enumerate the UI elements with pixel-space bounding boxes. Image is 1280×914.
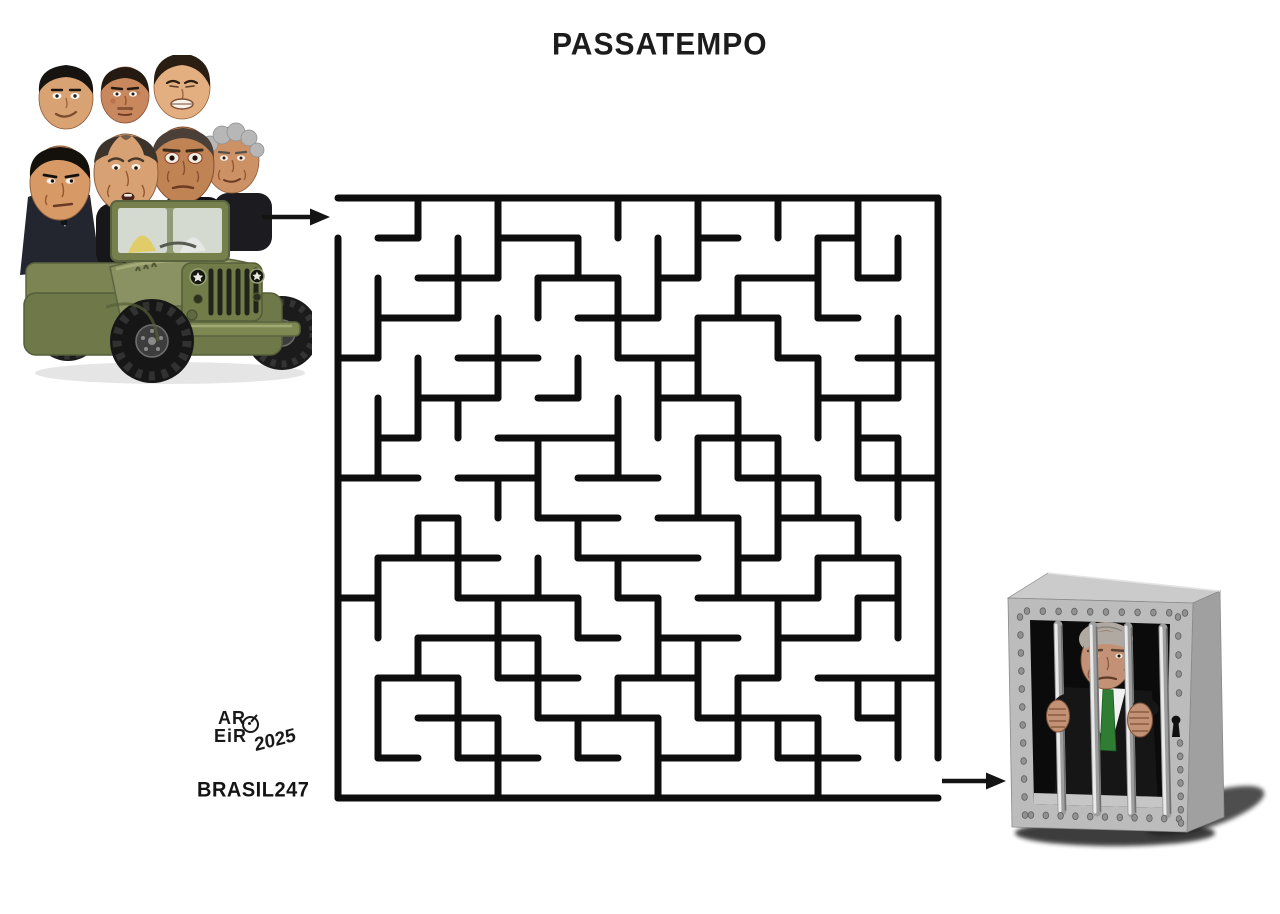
rivet-icon xyxy=(1019,704,1025,711)
jeep-windshield xyxy=(111,201,229,261)
rivet-icon xyxy=(1178,820,1184,827)
caricature-head-3 xyxy=(154,55,210,119)
rivet-icon xyxy=(1022,794,1028,801)
rivet-icon xyxy=(1135,609,1141,616)
rivet-icon xyxy=(1178,806,1184,813)
caricature-head-4 xyxy=(30,146,90,220)
jeep-front-wheel xyxy=(110,299,194,383)
rivet-icon xyxy=(1178,766,1184,773)
rivet-icon xyxy=(1176,652,1182,659)
rivet-icon xyxy=(1176,690,1182,697)
rivet-icon xyxy=(1018,650,1024,657)
rivet-icon xyxy=(1178,780,1184,787)
signature-o-dot xyxy=(248,722,251,725)
rivet-icon xyxy=(1175,614,1181,621)
jeep-grille xyxy=(182,263,264,321)
rivet-icon xyxy=(1018,632,1024,639)
caricature-head-6 xyxy=(152,127,214,203)
rivet-icon xyxy=(1019,686,1025,693)
rivet-icon xyxy=(1028,812,1034,819)
page-title: PASSATEMPO xyxy=(552,27,762,63)
rivet-icon xyxy=(1177,753,1183,760)
rivet-icon xyxy=(1040,608,1046,615)
rivet-icon xyxy=(1024,608,1030,615)
rivet-icon xyxy=(1103,609,1109,616)
cartoon-page: PASSATEMPO xyxy=(0,0,1280,914)
caricature-head-1 xyxy=(39,65,93,129)
maze-puzzle xyxy=(318,178,958,818)
rivet-icon xyxy=(1043,812,1049,819)
rivet-icon xyxy=(1182,610,1188,617)
rivet-icon xyxy=(1056,608,1062,615)
maze-exit-arrow-icon xyxy=(938,768,1008,794)
caricature-head-2 xyxy=(101,67,149,123)
rivet-icon xyxy=(1177,740,1183,747)
rivet-icon xyxy=(1176,671,1182,678)
rivet-icon xyxy=(1178,793,1184,800)
rivet-icon xyxy=(1020,740,1026,747)
rivet-icon xyxy=(1161,815,1167,822)
rivet-icon xyxy=(1147,815,1153,822)
rivet-icon xyxy=(1021,758,1027,765)
jail-cage-scene xyxy=(1000,565,1275,860)
rivet-icon xyxy=(1117,814,1123,821)
rivet-icon xyxy=(1073,813,1079,820)
rivet-icon xyxy=(1019,668,1025,675)
rivet-icon xyxy=(1072,608,1078,615)
brand-text: BRASIL247 xyxy=(197,778,309,802)
rivet-icon xyxy=(1022,812,1028,819)
rivet-icon xyxy=(1102,814,1108,821)
signature-year: 2025 xyxy=(253,725,297,757)
rivet-icon xyxy=(1020,722,1026,729)
rivet-icon xyxy=(1087,608,1093,615)
signature-o-tick xyxy=(250,714,258,722)
rivet-icon xyxy=(1021,776,1027,783)
rivet-icon xyxy=(1087,813,1093,820)
rivet-icon xyxy=(1175,633,1181,640)
prisoner-green-tie xyxy=(1100,689,1116,751)
signature-line2: EiR xyxy=(214,726,247,747)
rivet-icon xyxy=(1166,609,1172,616)
rivet-icon xyxy=(1058,812,1064,819)
rivet-icon xyxy=(1132,814,1138,821)
artist-signature: AR EiR 2025 xyxy=(200,708,330,778)
rivet-icon xyxy=(1151,609,1157,616)
rivet-icon xyxy=(1119,609,1125,616)
rivet-icon xyxy=(1017,614,1023,621)
